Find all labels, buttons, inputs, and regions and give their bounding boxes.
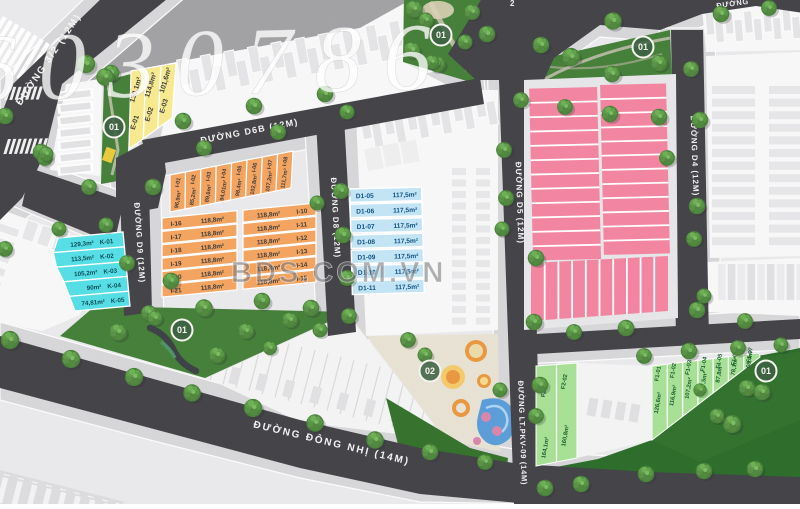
svg-text:6030786: 6030786	[0, 2, 453, 122]
svg-text:BDS.COM.VN: BDS.COM.VN	[231, 257, 446, 289]
